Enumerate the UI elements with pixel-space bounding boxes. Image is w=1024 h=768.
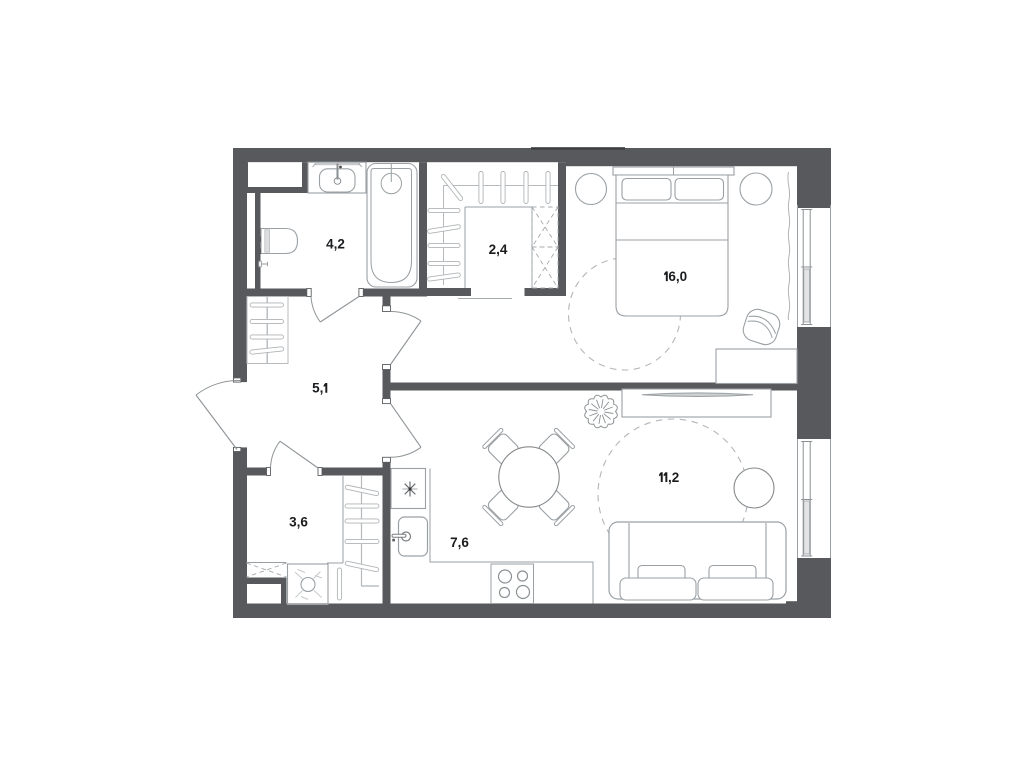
svg-text:7: 7 xyxy=(450,535,458,550)
svg-text:2: 2 xyxy=(489,242,497,257)
svg-text:2: 2 xyxy=(337,236,345,251)
svg-text:6: 6 xyxy=(300,514,308,529)
svg-text:4: 4 xyxy=(500,242,508,257)
svg-text:2: 2 xyxy=(672,470,680,485)
svg-text:6: 6 xyxy=(461,535,469,550)
svg-text:0: 0 xyxy=(680,269,688,284)
svg-text:,: , xyxy=(320,381,324,396)
